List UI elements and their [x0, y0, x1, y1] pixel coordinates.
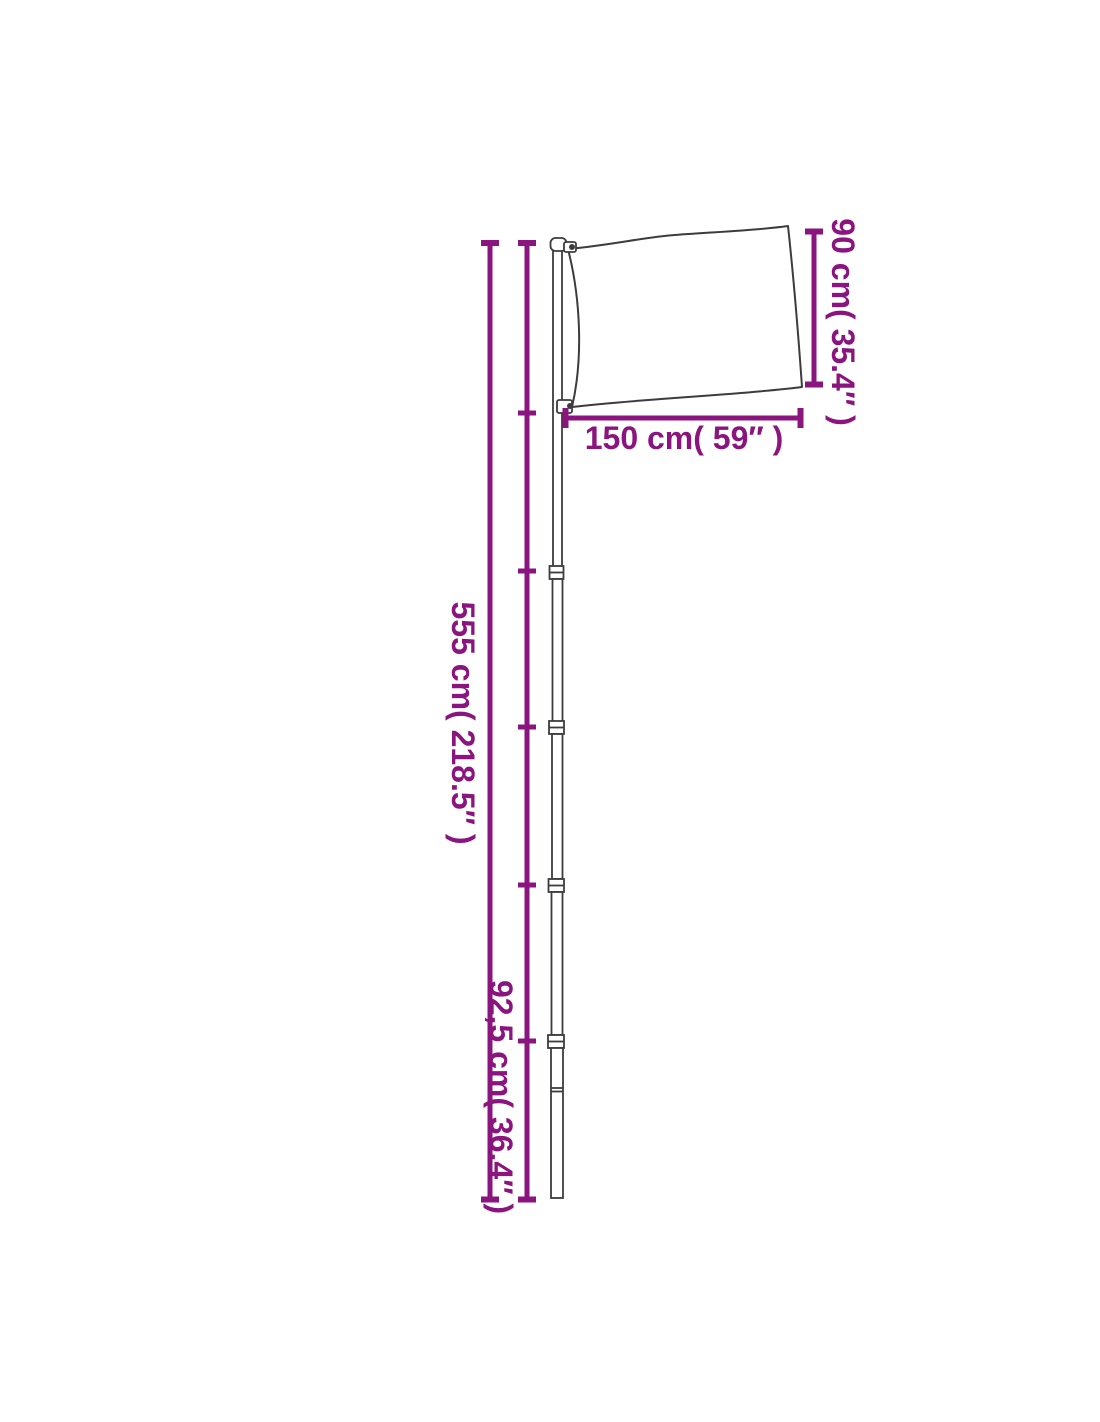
- pole-segment-2: [553, 579, 563, 724]
- dimension-section-height: [518, 242, 536, 1200]
- flagpole-dimension-diagram: 90 cm( 35.4″ ) 150 cm( 59″ ) 555 cm( 218…: [0, 0, 1100, 1422]
- dimension-flag-height: [805, 231, 823, 385]
- label-pole-height: 555 cm( 218.5″ ): [445, 601, 481, 844]
- label-flag-width: 150 cm( 59″ ): [585, 420, 784, 456]
- label-section-height: 92,5 cm( 36.4″ ): [483, 980, 519, 1214]
- flag: [568, 226, 802, 407]
- diagram-svg: 90 cm( 35.4″ ) 150 cm( 59″ ) 555 cm( 218…: [0, 0, 1100, 1422]
- flag-clip-top-knob: [569, 244, 575, 250]
- pole-segment-5: [551, 1048, 563, 1198]
- pole-segment-4: [552, 892, 563, 1035]
- label-flag-height: 90 cm( 35.4″ ): [825, 218, 861, 425]
- flagpole: [548, 250, 564, 1198]
- pole-segment-3: [552, 734, 563, 879]
